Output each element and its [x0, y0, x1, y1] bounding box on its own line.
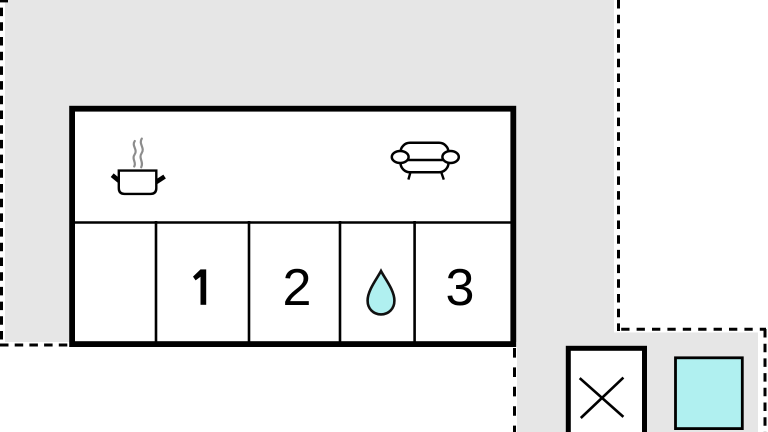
svg-text:3: 3: [446, 259, 475, 317]
svg-text:2: 2: [283, 259, 312, 317]
